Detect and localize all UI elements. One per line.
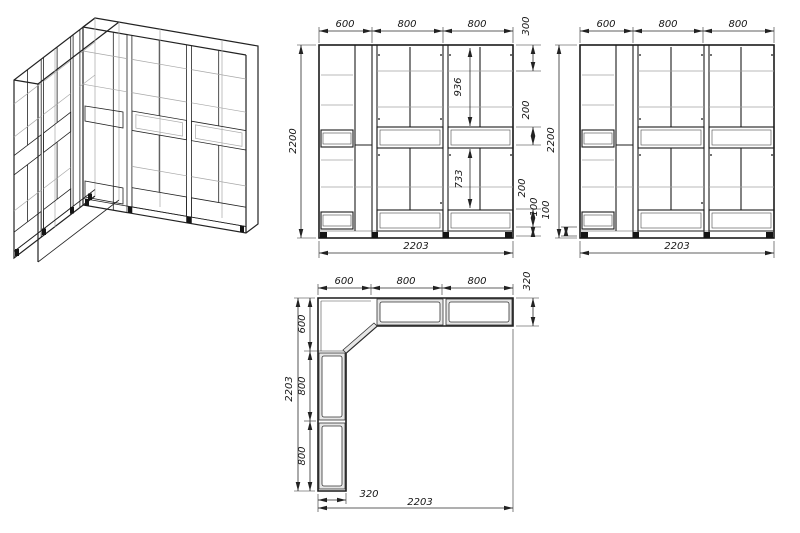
isometric-view xyxy=(14,18,258,262)
dim-label: 320 xyxy=(359,489,378,500)
dim-label: 800 xyxy=(297,376,308,395)
dim-label: 600 xyxy=(334,276,353,287)
plan-dims-top: 600 800 800 xyxy=(318,276,513,295)
dim-label: 200 xyxy=(521,100,532,119)
plan-dims-bottom: 320 2203 xyxy=(318,329,513,512)
dim-label: 2203 xyxy=(407,497,432,508)
side-cabinet-structure xyxy=(580,45,774,238)
front-elevation: 600 800 800 2200 300 200 200 100 xyxy=(288,16,541,258)
front-dims-inner: 936 733 xyxy=(453,48,470,208)
dim-label: 600 xyxy=(297,314,308,333)
side-dim-width: 2203 xyxy=(580,241,774,258)
front-dim-height: 2200 xyxy=(288,45,316,238)
dim-label: 733 xyxy=(454,169,465,188)
dim-label: 320 xyxy=(522,271,533,290)
dim-label: 800 xyxy=(396,276,415,287)
dim-label: 600 xyxy=(335,19,354,30)
dim-label: 300 xyxy=(521,16,532,35)
dim-label: 100 xyxy=(529,197,540,216)
plan-dim-depth-right: 320 xyxy=(516,271,539,326)
dim-label: 800 xyxy=(467,276,486,287)
dim-label: 2200 xyxy=(288,128,299,153)
side-dims-top: 600 800 800 xyxy=(580,19,774,43)
front-dims-top: 600 800 800 xyxy=(319,19,513,43)
dim-label: 800 xyxy=(728,19,747,30)
dim-label: 2203 xyxy=(403,241,428,252)
dim-label: 100 xyxy=(541,200,552,219)
plan-view: 600 800 800 320 600 800 800 2203 xyxy=(284,271,539,512)
dim-label: 800 xyxy=(397,19,416,30)
side-elevation: 600 800 800 2200 100 2203 xyxy=(541,19,774,258)
blueprint-page: 600 800 800 2200 300 200 200 100 xyxy=(0,0,800,533)
dim-label: 200 xyxy=(517,178,528,197)
dim-label: 600 xyxy=(596,19,615,30)
dim-label: 2200 xyxy=(546,127,557,152)
dim-label: 936 xyxy=(453,77,464,96)
front-cabinet-structure xyxy=(319,45,513,238)
dim-label: 2203 xyxy=(284,376,295,401)
front-dims-right: 300 200 200 100 xyxy=(516,16,541,236)
dim-label: 800 xyxy=(297,446,308,465)
blueprint-canvas: 600 800 800 2200 300 200 200 100 xyxy=(0,0,800,533)
dim-label: 800 xyxy=(467,19,486,30)
front-dim-width: 2203 xyxy=(319,241,513,258)
dim-label: 800 xyxy=(658,19,677,30)
dim-label: 2203 xyxy=(664,241,689,252)
